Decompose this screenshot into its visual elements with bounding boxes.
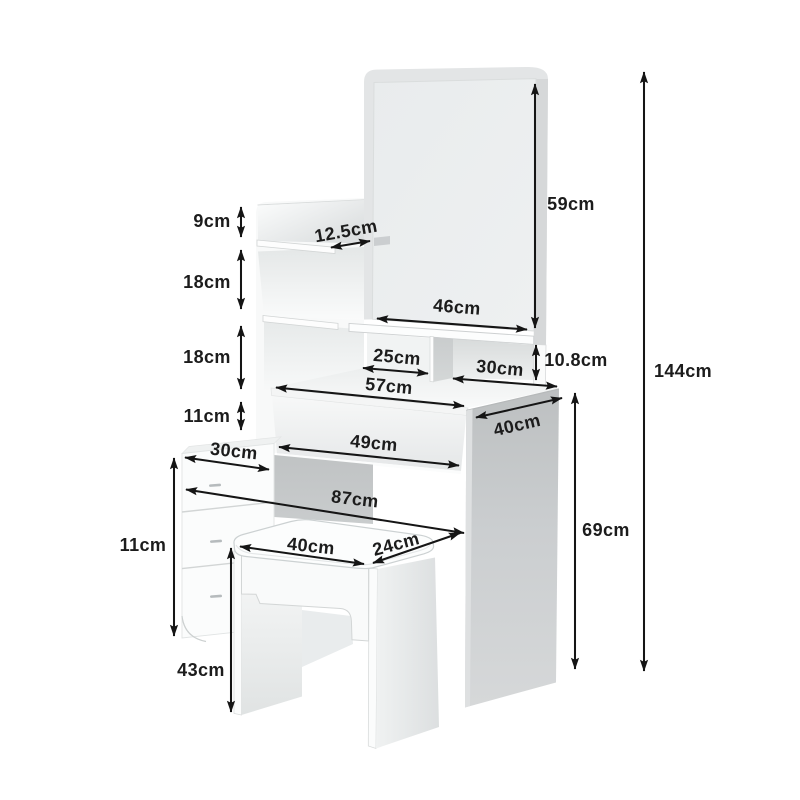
svg-text:30cm: 30cm bbox=[475, 356, 524, 380]
svg-text:11cm: 11cm bbox=[120, 535, 167, 555]
svg-text:10.8cm: 10.8cm bbox=[544, 350, 607, 370]
svg-text:144cm: 144cm bbox=[654, 361, 712, 381]
svg-text:69cm: 69cm bbox=[582, 520, 630, 540]
svg-text:46cm: 46cm bbox=[432, 295, 481, 319]
svg-text:59cm: 59cm bbox=[547, 194, 595, 214]
svg-text:18cm: 18cm bbox=[183, 347, 231, 367]
svg-text:11cm: 11cm bbox=[184, 406, 231, 426]
svg-text:9cm: 9cm bbox=[193, 211, 230, 231]
svg-text:18cm: 18cm bbox=[183, 272, 231, 292]
svg-text:43cm: 43cm bbox=[177, 660, 225, 680]
svg-text:25cm: 25cm bbox=[372, 345, 421, 369]
